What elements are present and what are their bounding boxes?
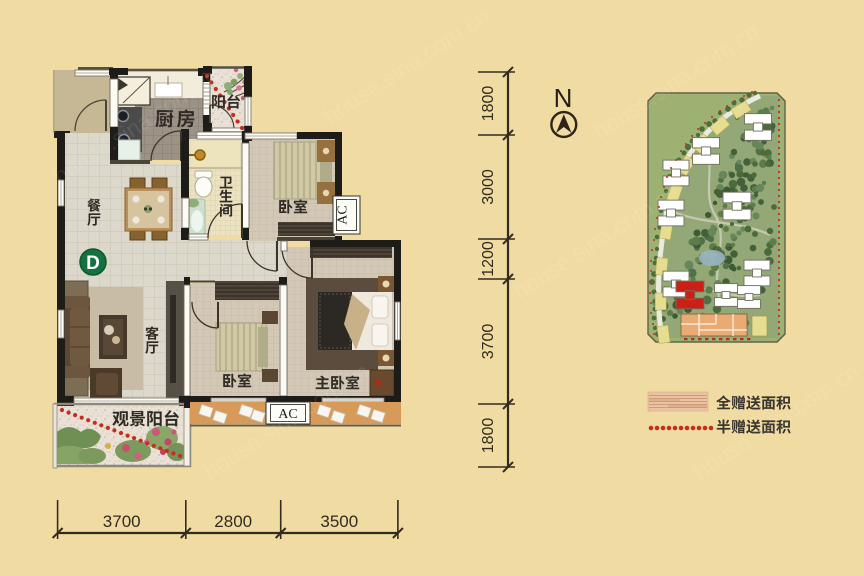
svg-text:1800: 1800 [480, 418, 497, 454]
svg-text:1800: 1800 [480, 86, 497, 122]
svg-text:3500: 3500 [320, 512, 358, 531]
svg-text:2800: 2800 [214, 512, 252, 531]
svg-text:3000: 3000 [480, 169, 497, 205]
svg-text:N: N [554, 83, 573, 113]
svg-text:D: D [86, 253, 100, 274]
svg-text:AC: AC [336, 205, 351, 224]
svg-text:3700: 3700 [103, 512, 141, 531]
svg-text:1200: 1200 [480, 241, 497, 277]
svg-text:3700: 3700 [480, 324, 497, 360]
